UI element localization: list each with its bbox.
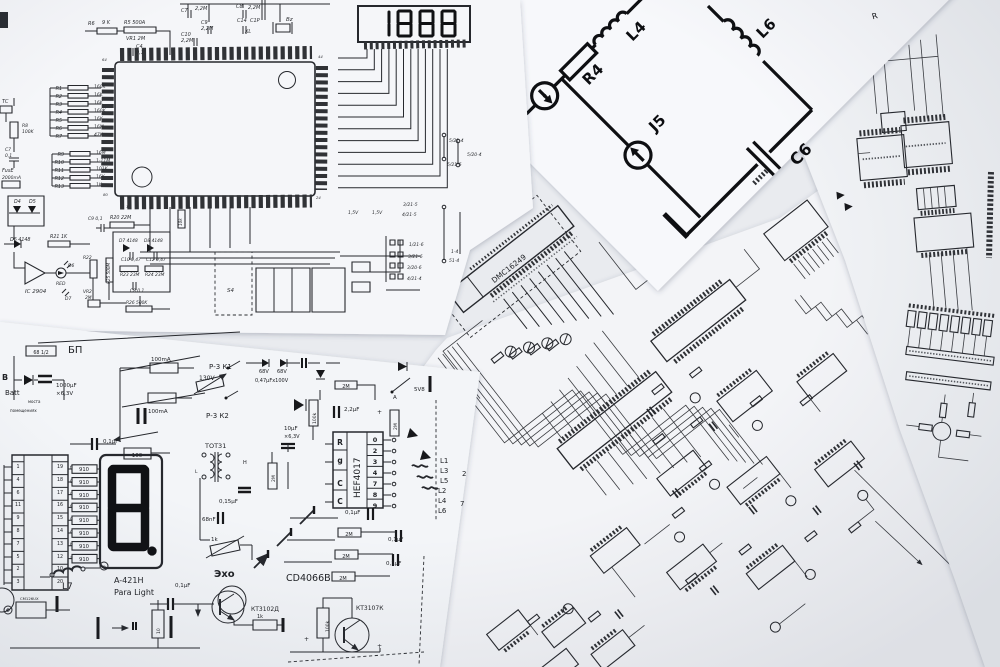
- photo-vignette: [0, 0, 1000, 667]
- photo-of-overlapping-schematics: DMC16249: [0, 0, 1000, 667]
- schematic-scene: DMC16249: [0, 0, 1000, 667]
